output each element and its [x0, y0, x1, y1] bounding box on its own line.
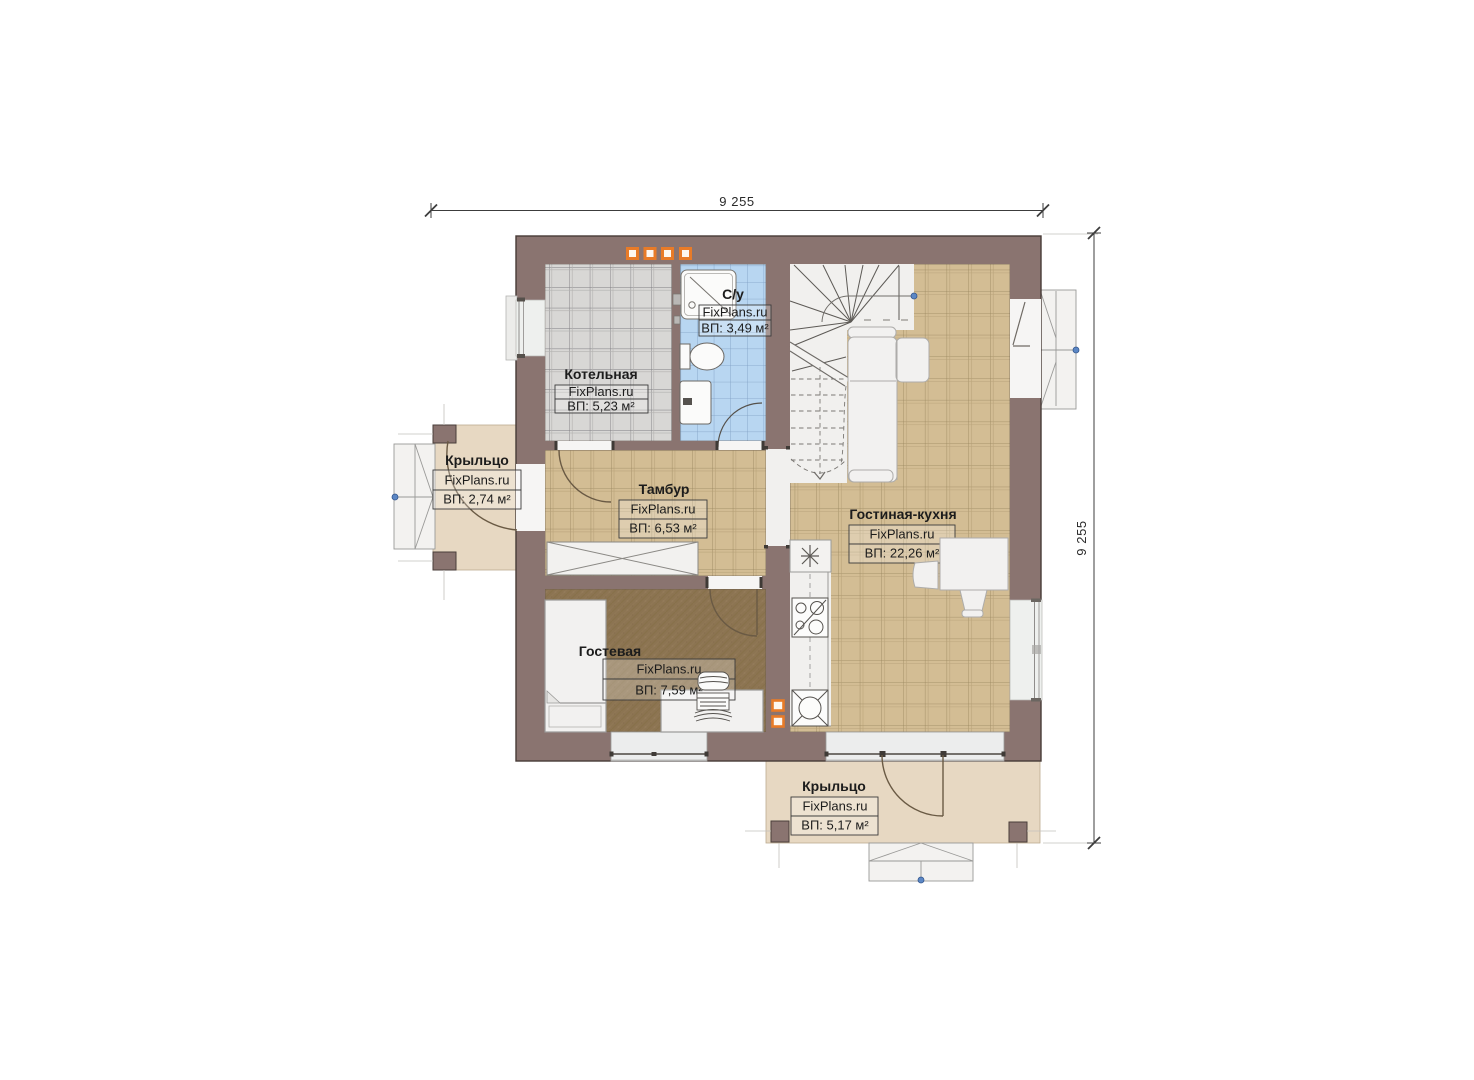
- svg-text:Крыльцо: Крыльцо: [802, 778, 866, 794]
- svg-text:9 255: 9 255: [1074, 520, 1089, 556]
- svg-text:ВП: 22,26 м²: ВП: 22,26 м²: [865, 546, 940, 561]
- svg-text:С/у: С/у: [722, 286, 744, 302]
- svg-text:Гостевая: Гостевая: [579, 643, 641, 659]
- svg-text:Крыльцо: Крыльцо: [445, 452, 509, 468]
- svg-text:ВП: 2,74 м²: ВП: 2,74 м²: [443, 492, 511, 507]
- svg-text:ВП: 6,53 м²: ВП: 6,53 м²: [629, 521, 697, 536]
- svg-text:ВП: 5,23 м²: ВП: 5,23 м²: [567, 399, 635, 414]
- svg-text:Котельная: Котельная: [564, 366, 637, 382]
- svg-text:ВП: 3,49 м²: ВП: 3,49 м²: [701, 321, 769, 336]
- svg-text:9 255: 9 255: [719, 194, 755, 209]
- svg-text:FixPlans.ru: FixPlans.ru: [802, 799, 867, 814]
- svg-text:FixPlans.ru: FixPlans.ru: [568, 384, 633, 399]
- svg-text:Гостиная-кухня: Гостиная-кухня: [849, 506, 956, 522]
- svg-text:FixPlans.ru: FixPlans.ru: [869, 527, 934, 542]
- svg-text:FixPlans.ru: FixPlans.ru: [702, 305, 767, 320]
- svg-text:FixPlans.ru: FixPlans.ru: [630, 502, 695, 517]
- svg-text:FixPlans.ru: FixPlans.ru: [636, 662, 701, 677]
- svg-text:ВП: 7,59 м²: ВП: 7,59 м²: [635, 683, 703, 698]
- svg-text:ВП: 5,17 м²: ВП: 5,17 м²: [801, 818, 869, 833]
- svg-text:FixPlans.ru: FixPlans.ru: [444, 473, 509, 488]
- svg-text:Тамбур: Тамбур: [639, 481, 690, 497]
